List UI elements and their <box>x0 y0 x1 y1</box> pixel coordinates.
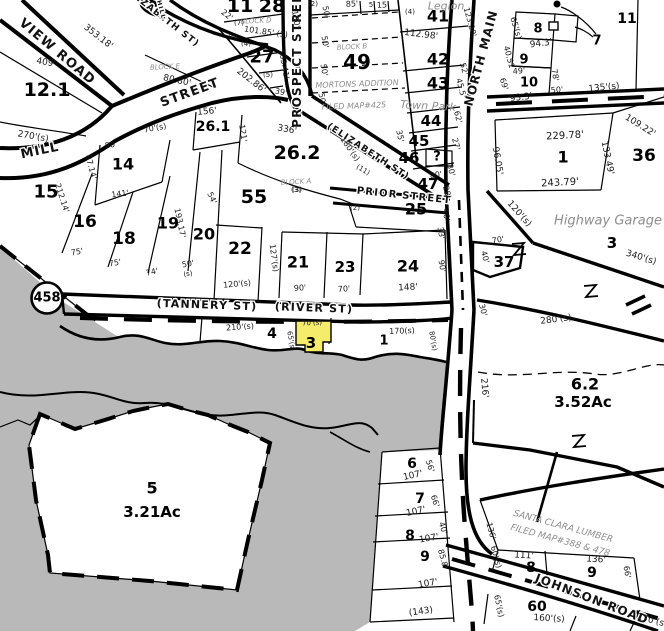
dimension-label-5: (5) <box>263 71 273 79</box>
dimension-label-85: 85' <box>346 0 359 9</box>
annotation-label-town-park: Town Park <box>400 98 457 114</box>
dimension-label-40: 40' <box>437 521 449 536</box>
parcel-label-6.2: 6.2 <box>571 375 599 394</box>
parcel-label-16: 16 <box>73 212 97 232</box>
dimension-label-94.3: 94.3' <box>529 38 553 51</box>
parcel-label-1: 1 <box>557 148 568 167</box>
dimension-label-30: 30' <box>477 303 489 317</box>
parcel-label-12.1: 12.1 <box>24 79 71 101</box>
dimension-label-40.51: 40.51 <box>502 45 517 69</box>
dimension-label-69: 69' <box>498 77 510 91</box>
dimension-label-243.79: 243.79' <box>541 177 579 190</box>
dimension-label-90: 90' <box>294 283 307 293</box>
annotation-label-block-e: BLOCK E <box>150 62 181 72</box>
dimension-label-120-s: 120'(s) <box>223 278 252 289</box>
dimension-label-33: 33' <box>435 226 446 240</box>
dimension-label-35: 35' <box>394 129 405 143</box>
dimension-label-7: (7) <box>234 19 244 27</box>
annotation-label-mortons-addition: MORTONS ADDITION <box>315 78 399 90</box>
dimension-label-78: 78' <box>549 68 560 82</box>
dimension-label-141: 141' <box>111 188 129 199</box>
annotation-label-block-b: BLOCK B <box>337 42 368 52</box>
parcel-label-44: 44 <box>421 112 442 130</box>
parcel-label-5: 5 <box>146 479 157 498</box>
parcel-label-11: 11 <box>617 11 636 27</box>
dimension-label-136: 136' <box>484 521 497 540</box>
parcel-label-37: 37 <box>494 253 515 271</box>
dimension-label-65-s: 65'(s) <box>508 16 523 40</box>
parcel-label-8: 8 <box>526 560 536 576</box>
annotation-label-legion: Legion <box>428 0 465 13</box>
parcel-label-9: 9 <box>420 549 430 565</box>
parcel-label-43: 43 <box>427 74 449 93</box>
parcel-label-42: 42 <box>427 50 449 69</box>
dimension-label-143: (143) <box>408 605 433 618</box>
dimension-label-148: 148' <box>398 282 418 293</box>
dimension-label-127-s: 127'(s) <box>268 244 281 273</box>
dimension-label-s: (s) <box>183 269 194 279</box>
dimension-label-103.41: 103.41' <box>277 48 291 79</box>
dimension-label-6: (6) <box>228 34 238 42</box>
parcel-label-25: 25 <box>405 200 427 219</box>
dimension-label-160-s: 160'(s) <box>533 613 565 625</box>
dimension-label-210-s: 210'(s) <box>226 322 254 333</box>
parcel-label-27: 27 <box>249 47 274 68</box>
parcel-label-36: 36 <box>632 146 656 166</box>
dimension-label-50: 50' <box>181 258 195 269</box>
parcel-label-10: 10 <box>520 76 538 91</box>
dimension-label-11: (11) <box>355 163 372 177</box>
dimension-label-96.05: 96.05' <box>490 146 505 176</box>
parcel-label-46: 46 <box>399 149 420 167</box>
dimension-label-5: 5 <box>369 1 373 9</box>
route-shield-label-458: 458 <box>33 291 60 306</box>
dimension-label-75: 75' <box>70 246 84 257</box>
dimension-label-156: 156' <box>197 106 217 118</box>
dimension-label-340-s: 340'(s) <box>625 249 658 268</box>
parcel-label-9: 9 <box>587 565 597 581</box>
dimension-label-62: 62' <box>452 110 464 124</box>
point-symbol <box>554 1 561 8</box>
dimension-label-109.22: 109.22' <box>623 113 657 139</box>
parcel-label-3: 3 <box>607 234 617 252</box>
annotation-label-filed-map-425: FILED MAP#425 <box>322 100 387 111</box>
annotation-label-highway-garage: Highway Garage <box>554 214 662 229</box>
parcel-label-: ? <box>433 150 441 165</box>
dimension-label-54: 54' <box>205 190 218 205</box>
dimension-label-87.14: 87.14' <box>83 154 98 181</box>
parcel-label-49: 49 <box>343 50 371 74</box>
dimension-label-353.18: 353.18' <box>82 23 115 52</box>
dimension-label-40: 40' <box>479 250 491 264</box>
parcel-label-21: 21 <box>287 253 309 272</box>
dimension-label-50: 50' <box>316 92 327 106</box>
dimension-label-52: 52' <box>458 62 470 76</box>
dimension-label-27: 27' <box>450 137 462 151</box>
parcel-lines <box>0 0 664 344</box>
parcel-label-45: 45 <box>409 132 430 150</box>
dimension-label-107: 107' <box>418 532 439 545</box>
zigzag-mark-3 <box>572 435 586 447</box>
dimension-label-15: 15' <box>377 0 390 10</box>
dimension-label-74: 74' <box>145 266 159 277</box>
dimension-label-123.20: 123.20' <box>462 6 479 38</box>
parcel-label-7: 7 <box>592 34 601 49</box>
dimension-label-56: 56' <box>424 459 436 474</box>
dimension-label-229.78: 229.78' <box>546 130 584 143</box>
dimension-label-80: 80' <box>429 170 443 181</box>
dimension-label-133.49: 133.49' <box>599 140 616 175</box>
parcel-label-18: 18 <box>112 229 136 249</box>
parcel-label-22: 22 <box>228 239 252 259</box>
dimension-label-409: 409' <box>35 56 56 69</box>
parcel-label-8: 8 <box>533 22 542 37</box>
building-symbol <box>549 22 558 30</box>
parcel-label-3.52ac: 3.52Ac <box>554 393 612 411</box>
dimension-label-3: (3) <box>292 186 302 194</box>
dimension-label-65-s: 65'(s) <box>492 594 506 618</box>
dimension-label-170-s: 170(s) <box>389 326 415 336</box>
parcel-label-1: 1 <box>379 334 388 349</box>
dimension-label-80: 80' <box>104 140 118 151</box>
parcel-label-20: 20 <box>193 225 215 244</box>
dimension-label-66: 66' <box>429 494 441 509</box>
parcel-label-28: 28 <box>259 0 285 17</box>
parcel-label-24: 24 <box>397 257 419 276</box>
dimension-label-2: (2) <box>350 204 360 212</box>
parcel-label-23: 23 <box>335 258 356 276</box>
dimension-label-49: 49' <box>512 66 525 76</box>
parcel-label-26.1: 26.1 <box>196 119 231 135</box>
parcel-label-3: 3 <box>306 334 316 352</box>
parcel-map: Tax parcel map — Tannery St / River St a… <box>0 0 664 631</box>
parcel-label-4: 4 <box>267 326 277 342</box>
dimension-label-216: 216' <box>478 378 490 398</box>
dimension-label-270-s: 270'(s) <box>17 129 50 144</box>
dimension-label-107: 107' <box>405 505 426 519</box>
dimension-label-40: 40' <box>440 208 451 222</box>
dimension-label-4: (4) <box>241 40 251 48</box>
dimension-label-111: 111' <box>514 550 534 561</box>
dimension-label-50: 50' <box>550 85 563 95</box>
dimension-label-75: 75' <box>108 257 122 268</box>
dimension-label-50: 50' <box>319 35 330 49</box>
parcel-label-14: 14 <box>112 155 134 174</box>
parcel-label-3.21ac: 3.21Ac <box>123 503 181 521</box>
zigzag-mark-2 <box>584 285 598 297</box>
dimension-label-4: (4) <box>405 8 415 16</box>
parcel-label-55: 55 <box>241 186 267 208</box>
dimension-label-70-s: 70'(s) <box>302 318 323 327</box>
parcel-label-8: 8 <box>405 528 415 544</box>
street-label-river-st: (RIVER ST) <box>275 300 354 316</box>
dimension-label-80-s: 80'(s) <box>427 330 438 351</box>
dimension-label-112.98: 112.98' <box>404 28 439 42</box>
dimension-label-50: 50' <box>318 63 329 77</box>
parcel-label-26.2: 26.2 <box>274 142 321 164</box>
dimension-label-90: 90' <box>436 259 447 273</box>
dimension-label-2: (2) <box>308 0 318 8</box>
dimension-label-280-s: 280'(s) <box>540 313 572 327</box>
dimension-label-66: 66' <box>621 565 632 579</box>
gate-symbol <box>626 296 651 314</box>
dimension-label-136: 136' <box>586 554 606 565</box>
street-label-tannery-st: (TANNERY ST) <box>156 297 257 314</box>
dimension-label-70: 70' <box>338 284 351 294</box>
dimension-label-39: 39' <box>274 86 288 97</box>
dimension-label-107: 107' <box>417 577 438 590</box>
dimension-label-336: 336' <box>276 123 297 136</box>
parcel-map-viewport[interactable]: Tax parcel map — Tannery St / River St a… <box>0 0 664 631</box>
dimension-label-121: 121' <box>237 124 248 143</box>
